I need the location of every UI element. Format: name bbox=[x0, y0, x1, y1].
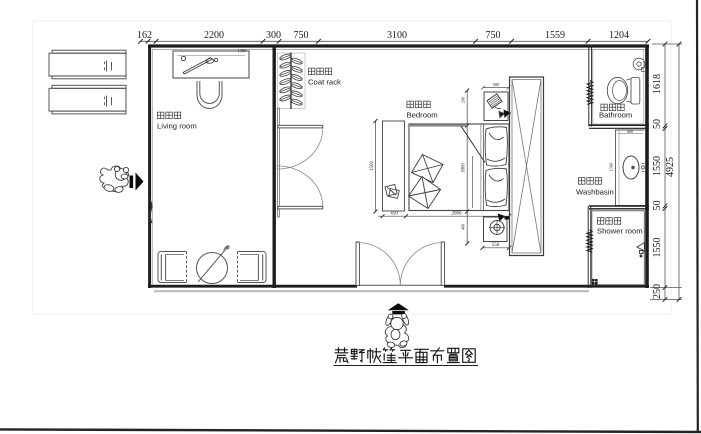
svg-text:50: 50 bbox=[652, 119, 663, 129]
svg-text:1550: 1550 bbox=[652, 156, 663, 176]
svg-text:Washbasin: Washbasin bbox=[576, 188, 614, 197]
svg-text:1559: 1559 bbox=[545, 30, 565, 41]
svg-text:1400: 1400 bbox=[238, 48, 248, 53]
svg-text:750: 750 bbox=[486, 30, 501, 41]
svg-text:3100: 3100 bbox=[387, 30, 407, 41]
svg-text:1500: 1500 bbox=[370, 161, 375, 172]
svg-text:400: 400 bbox=[461, 224, 466, 230]
svg-text:1204: 1204 bbox=[609, 30, 629, 41]
svg-text:4925: 4925 bbox=[665, 157, 676, 177]
svg-text:Bathroom: Bathroom bbox=[599, 111, 632, 120]
svg-text:50: 50 bbox=[652, 201, 663, 211]
svg-text:1800: 1800 bbox=[462, 163, 467, 174]
svg-text:Coat rack: Coat rack bbox=[308, 78, 341, 87]
svg-text:1618: 1618 bbox=[652, 74, 663, 94]
svg-text:2200: 2200 bbox=[204, 30, 224, 41]
svg-text:Living room: Living room bbox=[157, 122, 197, 131]
svg-text:550: 550 bbox=[492, 243, 500, 248]
svg-text:1500: 1500 bbox=[609, 163, 614, 171]
svg-text:250: 250 bbox=[652, 284, 663, 299]
svg-text:2000: 2000 bbox=[452, 212, 463, 217]
svg-text:450: 450 bbox=[390, 212, 398, 217]
svg-text:300: 300 bbox=[266, 30, 281, 41]
svg-text:200: 200 bbox=[460, 97, 465, 103]
svg-text:162: 162 bbox=[137, 30, 152, 41]
svg-text:750: 750 bbox=[294, 30, 309, 41]
svg-text:1550: 1550 bbox=[652, 238, 663, 258]
svg-text:500: 500 bbox=[493, 82, 501, 87]
svg-text:Shower room: Shower room bbox=[597, 227, 643, 236]
svg-text:Bedroom: Bedroom bbox=[407, 111, 438, 120]
svg-text:400: 400 bbox=[627, 129, 633, 134]
